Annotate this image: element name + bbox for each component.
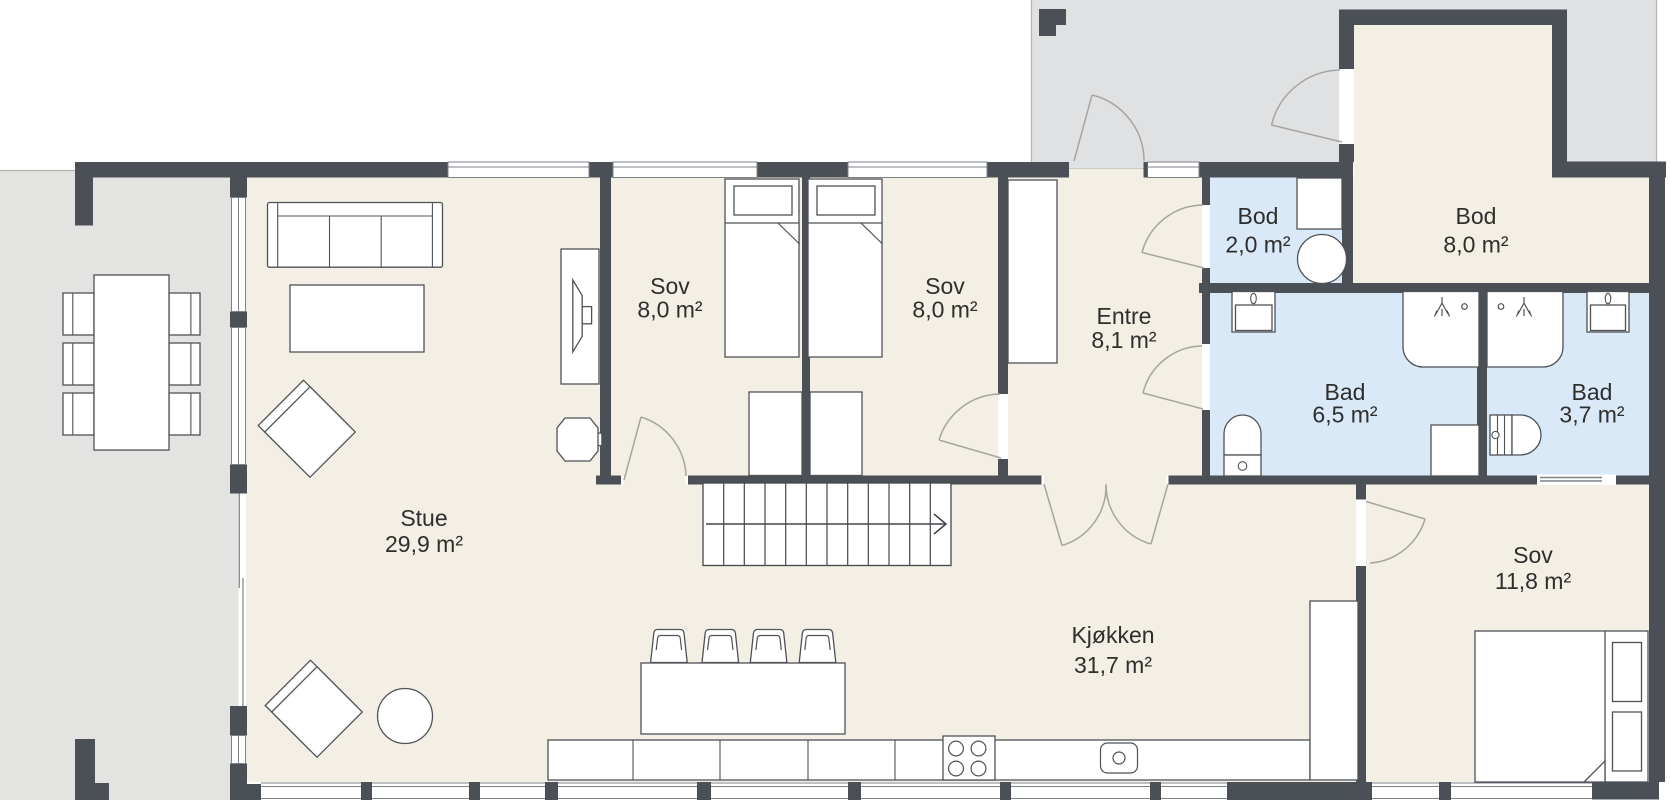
svg-text:Bod: Bod <box>1238 203 1279 229</box>
svg-text:8,0 m²: 8,0 m² <box>912 297 978 323</box>
svg-text:8,1 m²: 8,1 m² <box>1091 327 1157 353</box>
svg-text:31,7 m²: 31,7 m² <box>1074 652 1152 678</box>
svg-text:Sov: Sov <box>650 273 690 299</box>
svg-text:6,5 m²: 6,5 m² <box>1312 402 1378 428</box>
svg-text:Entre: Entre <box>1097 303 1152 329</box>
svg-text:2,0 m²: 2,0 m² <box>1225 232 1291 258</box>
svg-text:11,8 m²: 11,8 m² <box>1495 568 1572 594</box>
svg-text:3,7 m²: 3,7 m² <box>1559 402 1625 428</box>
svg-text:29,9 m²: 29,9 m² <box>385 531 463 557</box>
svg-text:Kjøkken: Kjøkken <box>1071 622 1154 648</box>
svg-text:8,0 m²: 8,0 m² <box>1443 232 1509 258</box>
svg-text:Stue: Stue <box>400 505 447 531</box>
svg-text:Sov: Sov <box>925 273 965 299</box>
svg-text:8,0 m²: 8,0 m² <box>637 297 703 323</box>
svg-text:Bod: Bod <box>1456 203 1497 229</box>
svg-text:Sov: Sov <box>1513 542 1553 568</box>
